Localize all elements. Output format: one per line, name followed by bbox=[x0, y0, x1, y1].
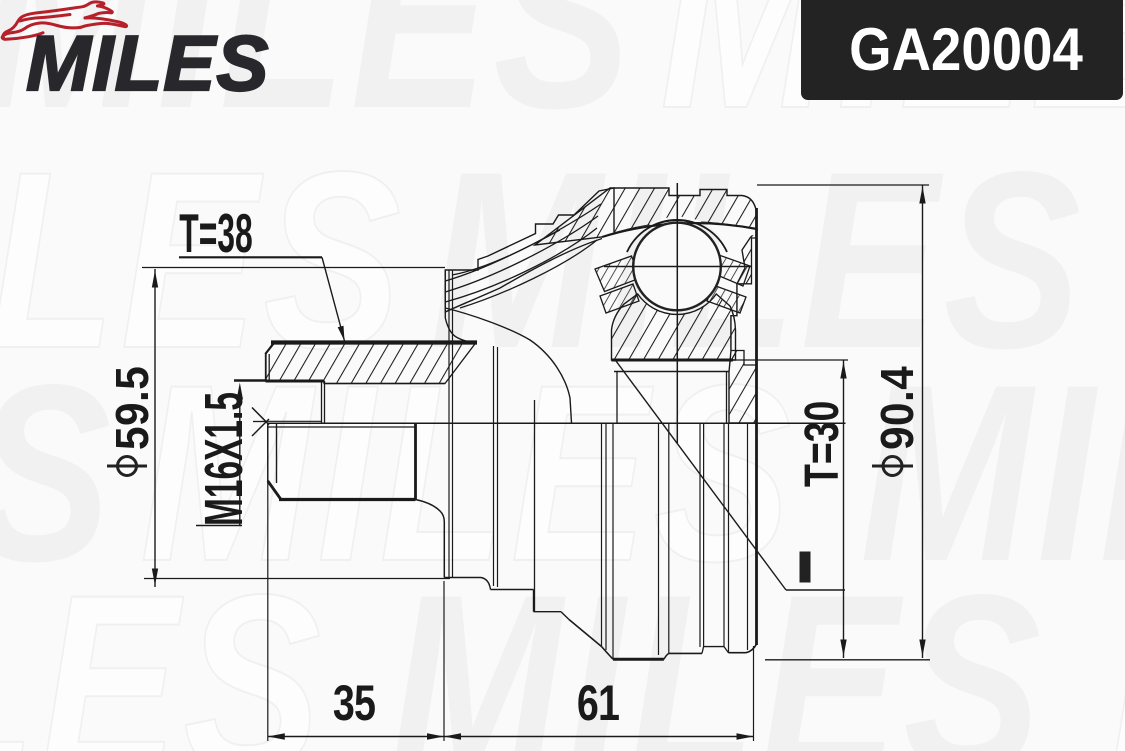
svg-text:M16X1.5: M16X1.5 bbox=[193, 392, 254, 526]
svg-text:T=30: T=30 bbox=[796, 401, 850, 487]
svg-text:T=38: T=38 bbox=[179, 202, 253, 264]
svg-text:GA20004: GA20004 bbox=[849, 17, 1083, 84]
svg-text:MILES: MILES bbox=[26, 19, 269, 107]
svg-text:61: 61 bbox=[577, 675, 619, 732]
svg-text:59.5: 59.5 bbox=[107, 366, 158, 450]
svg-text:90.4: 90.4 bbox=[872, 366, 923, 450]
svg-text:MILES: MILES bbox=[1110, 541, 1125, 751]
svg-text:35: 35 bbox=[333, 675, 375, 732]
svg-text:MILES: MILES bbox=[0, 541, 326, 751]
